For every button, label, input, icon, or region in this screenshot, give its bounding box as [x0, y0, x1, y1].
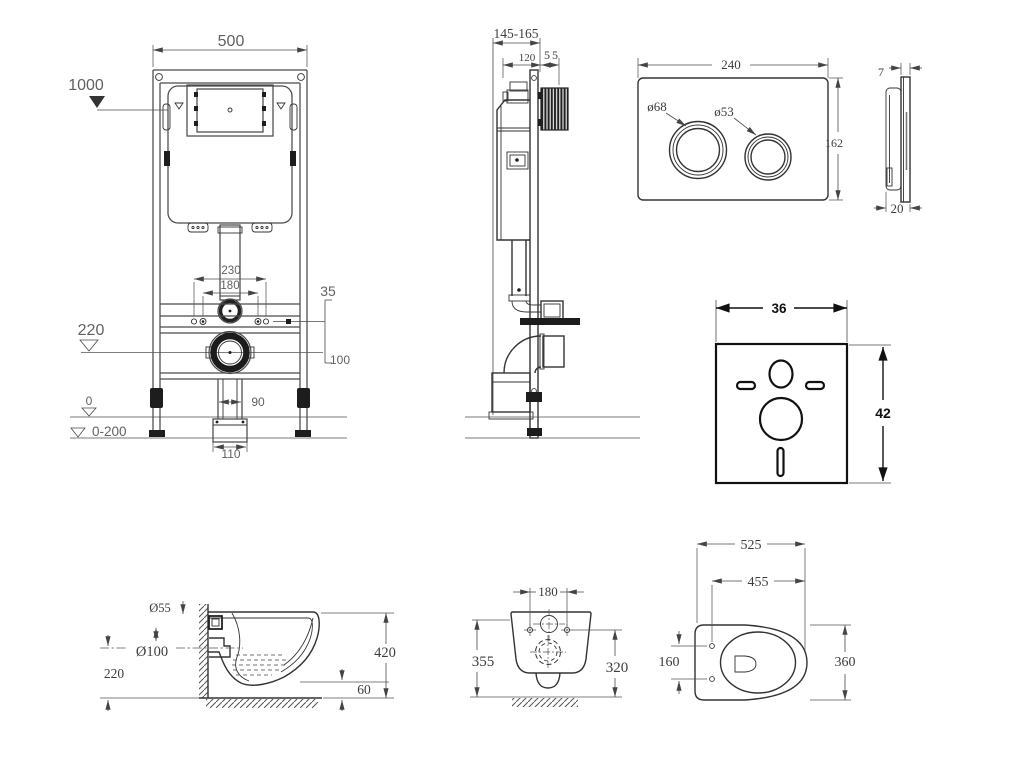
fixing-hole-bottom: [710, 677, 715, 682]
dim-depth-range: 145-165: [494, 26, 539, 41]
fixing-holes: [524, 624, 573, 636]
dim-drain-height: 220: [78, 322, 105, 339]
small-flush-button: [745, 134, 791, 180]
dim-foot-width: 90: [251, 395, 265, 409]
frame-upright: [530, 70, 538, 438]
dim-fixing-depth: 455: [748, 575, 769, 590]
dim-pan-height: 420: [374, 645, 396, 661]
support-arm: [520, 318, 580, 325]
flush-plate-side-view: 7 20: [874, 63, 922, 216]
dim-level-range: 0-200: [92, 424, 127, 439]
pad-slot-right: [806, 382, 824, 389]
dim-pad-width: 36: [771, 301, 787, 316]
fixing-hole-top: [710, 644, 715, 649]
pad-slot-bottom: [778, 448, 784, 476]
pan-body-profile: [208, 612, 319, 685]
drain-elbow: [489, 334, 564, 419]
dim-outlet: Ø100: [136, 644, 168, 660]
frame-side-view: 145-165 120 55: [465, 26, 640, 438]
frame-front-view: 500: [68, 33, 350, 461]
frame-feet: [149, 379, 311, 442]
dim-fixing-span: 160: [659, 655, 680, 670]
level-mark-range: [71, 428, 85, 437]
dim-back-height: 355: [472, 654, 495, 670]
plate-outline: [638, 78, 828, 200]
floor-hatch: [206, 699, 318, 708]
pad-slot-left: [737, 382, 755, 389]
dim-total-depth: 20: [891, 201, 904, 216]
access-window: [187, 85, 273, 136]
dim-flush-height: 1000: [68, 77, 104, 94]
floor-hatch-back: [512, 698, 578, 707]
cistern-profile: [497, 82, 530, 240]
dim-small-button: ø53: [714, 104, 734, 119]
dim-inlet: Ø55: [149, 601, 171, 615]
wall-hatch: [199, 604, 208, 698]
dim-depth-plate: 55: [544, 48, 560, 62]
dim-pad-height: 42: [875, 405, 891, 421]
frame-outline: [153, 70, 307, 390]
dim-frame-width: 500: [218, 33, 245, 50]
dim-fixing-height: 320: [606, 660, 629, 676]
dim-plate-height: 162: [825, 136, 843, 150]
dim-panel-thickness: 7: [878, 65, 884, 79]
big-flush-button: [670, 122, 727, 179]
dim-back-span: 180: [538, 584, 558, 599]
drain-socket: [206, 332, 254, 374]
dim-level-zero: 0: [86, 394, 93, 408]
cistern: [163, 85, 297, 232]
dim-offset-b: 100: [330, 353, 350, 367]
dim-depth-frame: 120: [519, 52, 536, 64]
pad-outline: [716, 344, 847, 483]
pan-back-trap: [536, 673, 560, 688]
pan-side-view: Ø55 Ø100 220 420 60: [100, 601, 396, 711]
level-mark-0: [82, 408, 96, 416]
dim-span-inner: 180: [220, 280, 239, 292]
flush-bend: [509, 240, 563, 320]
dim-floor-gap: 60: [357, 682, 371, 697]
dim-offset-a: 35: [320, 283, 336, 299]
pad-inlet-hole: [770, 361, 793, 388]
level-mark-220: [80, 340, 98, 351]
drawing-canvas: 500: [0, 0, 1024, 758]
dim-plate-width: 240: [721, 57, 741, 72]
water-spot: [735, 656, 756, 672]
pan-back-view: 180 355 320: [470, 584, 628, 707]
sound-pad-view: 36 42: [716, 300, 891, 483]
pan-top-view: 525 455 160 360: [659, 538, 856, 700]
leg-bracket: [526, 392, 542, 402]
dim-span-outer: 230: [221, 265, 240, 277]
dim-plate-width: 110: [221, 447, 240, 461]
dim-outlet-height: 220: [104, 666, 125, 681]
flush-plate-front-view: 240 162 ø68 ø53: [638, 57, 843, 200]
dim-pan-width: 360: [835, 655, 856, 670]
pad-outlet-hole: [760, 398, 802, 440]
plate-panel: [901, 77, 910, 202]
dim-big-button: ø68: [647, 99, 667, 114]
bowl-rim: [721, 632, 796, 693]
wall-bracket: [538, 88, 568, 130]
level-mark-1000: [89, 96, 105, 108]
leg-foot: [527, 428, 542, 436]
dim-pan-length: 525: [741, 538, 762, 553]
outlet-hole: [530, 635, 566, 670]
plate-housing: [886, 88, 901, 190]
